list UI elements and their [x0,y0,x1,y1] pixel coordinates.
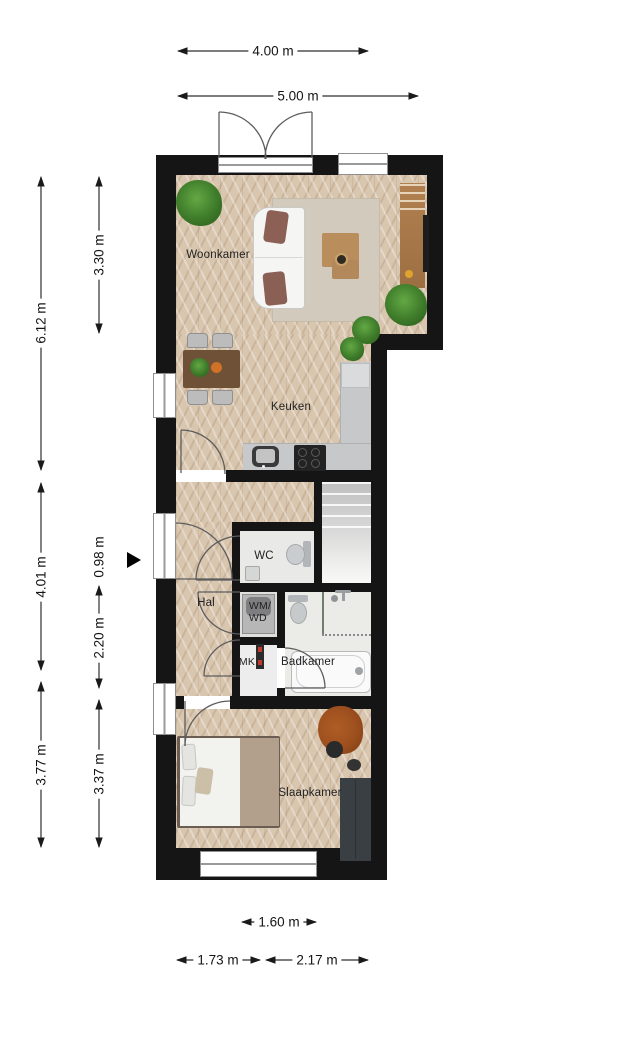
room-label-wmwd: WM/ WD [249,600,271,624]
shower-head-icon [331,595,338,602]
wall-stairs-left [314,482,322,592]
window-bottom [200,851,317,877]
wall-badkamer-left-b [277,688,285,696]
plant [385,284,427,326]
wc-sink [245,566,260,581]
room-label-wc: WC [254,550,274,562]
bath-toilet-tank [288,595,308,602]
dining-chair [212,390,233,405]
floorplan-canvas: 4.00 m 5.00 m 6.12 m 3.30 m 4.01 m 0.98 … [0,0,618,1058]
floor-hal [176,522,232,696]
sofa-cushion [262,271,287,306]
wall-right-narrow [371,334,387,880]
pillow [181,744,197,771]
window-keuken [153,373,176,418]
wc-toilet-bowl [286,544,305,565]
fruit-bowl [211,362,222,373]
burner-icon [298,459,307,468]
plant [176,180,222,226]
entrance-arrow-icon [127,552,141,568]
window-slaapkamer [153,683,176,735]
room-label-wmwd-line1: WM/ [249,600,271,612]
sideboard-shelves [400,184,425,216]
window-top [338,153,388,175]
wall-slaapkamer-top-b [230,696,387,709]
sofa-seat-divider [255,257,303,258]
room-label-keuken: Keuken [271,401,311,413]
shower-tap-stem [342,593,345,601]
side-table [347,759,361,771]
dining-chair [212,333,233,348]
shower-boundary-dotted [322,634,371,636]
dim-left-small: 0.98 m [92,532,107,581]
wall-wc-left [232,522,240,696]
dining-chair [187,333,208,348]
dim-top-outer: 5.00 m [273,89,322,104]
room-label-wmwd-line2: WD [249,612,271,624]
dim-left-upper-total: 6.12 m [34,298,49,347]
room-label-woonkamer: Woonkamer [186,249,250,261]
tv [423,215,429,272]
dim-left-woonkamer: 3.30 m [92,230,107,279]
room-label-badkamer: Badkamer [281,656,335,668]
room-label-mk: MK [239,656,255,668]
burner-icon [298,448,307,457]
bed-blanket [240,738,279,826]
plant [340,337,364,361]
sideboard-knob [405,270,413,278]
dim-bottom-window: 1.60 m [254,915,303,930]
burner-icon [311,459,320,468]
sofa-cushion [263,210,289,245]
floor-hal-top [176,482,314,522]
wall-wc-top [232,522,322,531]
sink-basin [256,449,275,463]
dim-left-slaapkamer: 3.37 m [92,749,107,798]
stairs-treads [322,482,371,536]
meter-box-light [258,647,262,652]
dim-left-lower-total: 3.77 m [34,740,49,789]
dining-chair [187,390,208,405]
burner-icon [311,448,320,457]
shower-glass [322,592,324,636]
room-label-slaapkamer: Slaapkamer [278,787,341,799]
room-label-hal: Hal [197,597,215,609]
bath-toilet-bowl [290,602,307,624]
dim-left-mid-total: 4.01 m [34,552,49,601]
meter-box-light [258,660,262,665]
french-door-opening [218,157,313,173]
kitchen-appliance [341,363,370,388]
dim-top-inner: 4.00 m [248,44,297,59]
wardrobe-divider [355,780,356,859]
dim-bottom-left: 1.73 m [193,953,242,968]
coffee-table-bowl [335,253,348,266]
floor-lamp [326,741,343,758]
sink-tap [262,465,265,468]
front-door-opening [153,513,176,579]
table-plant [190,358,209,377]
wall-right-wide [427,155,443,350]
wall-keuken-hal [226,470,371,482]
dim-bottom-right: 2.17 m [292,953,341,968]
dim-left-hal: 2.20 m [92,613,107,662]
bathtub-tap [355,667,363,675]
